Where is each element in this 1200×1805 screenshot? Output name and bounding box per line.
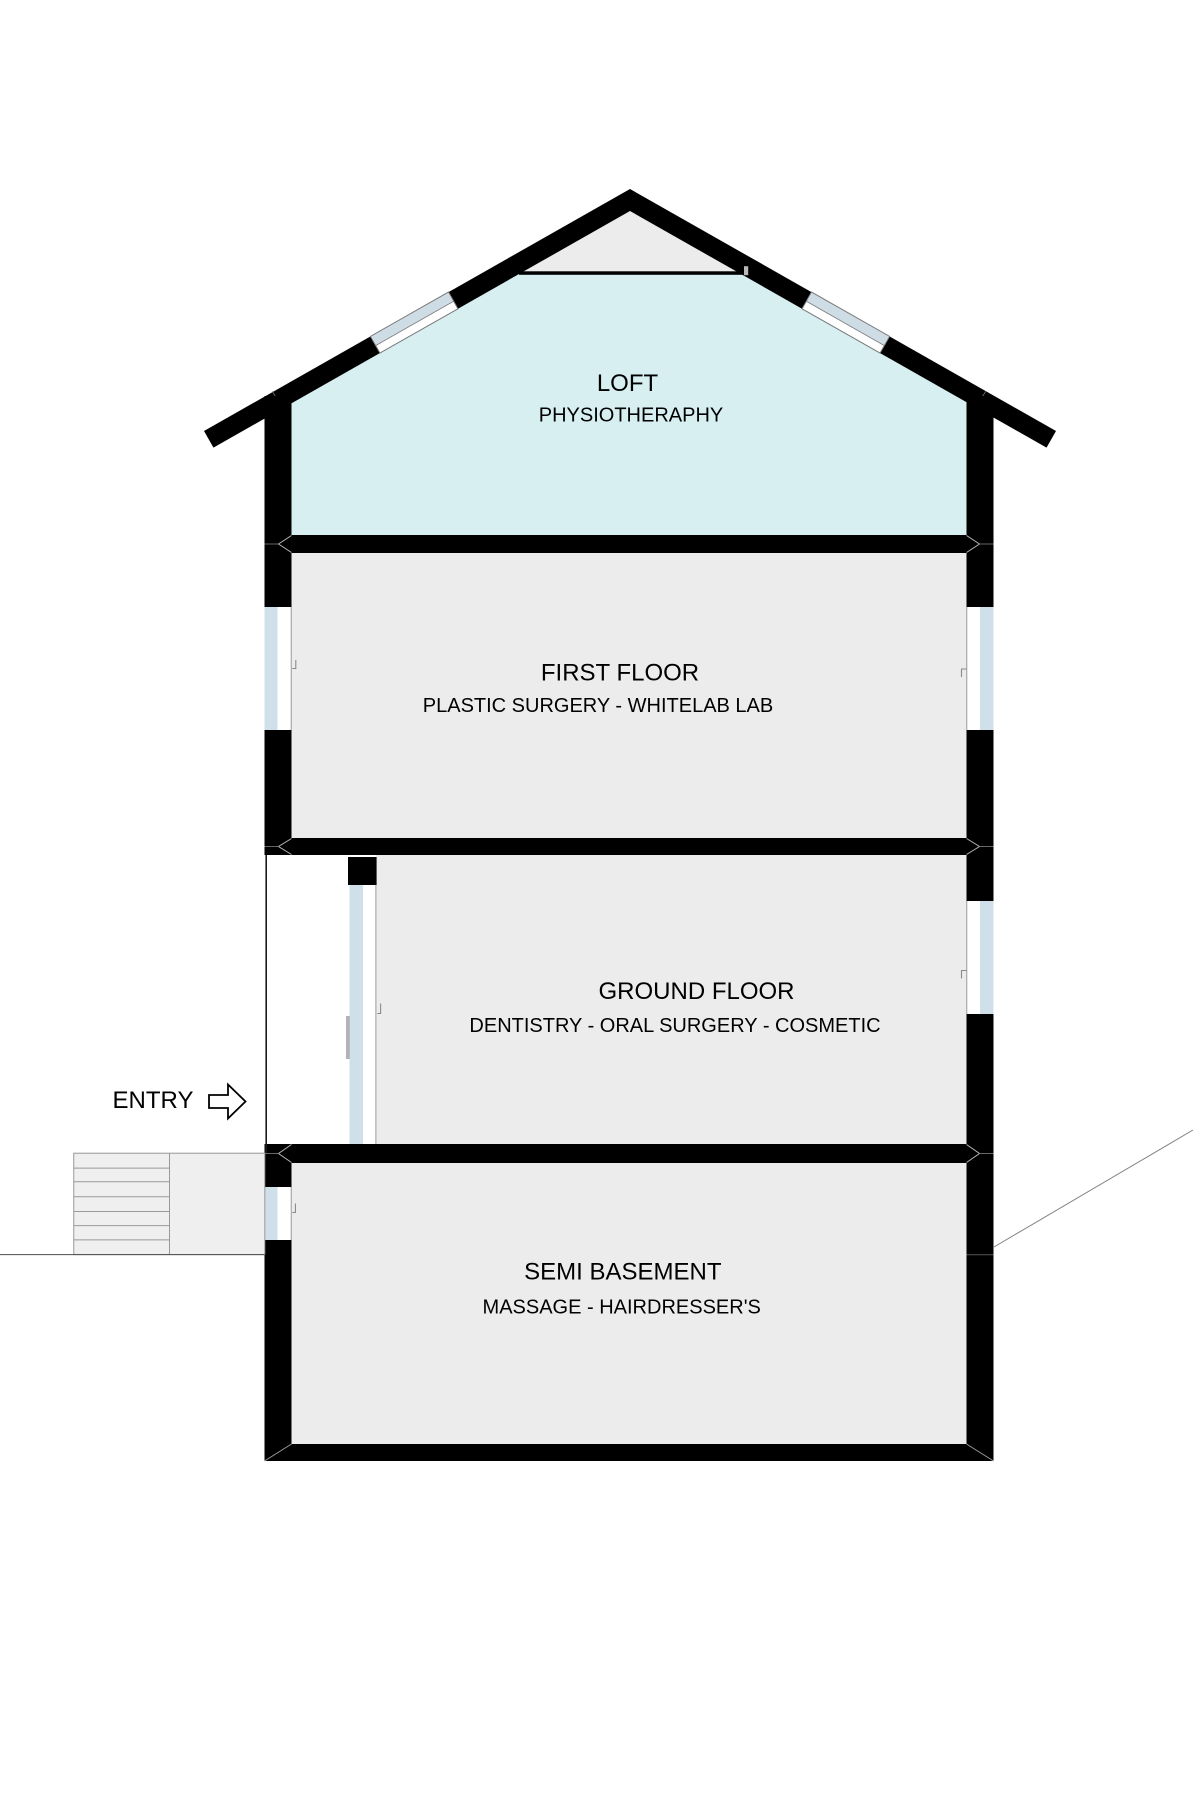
svg-text:PHYSIOTHERAPHY: PHYSIOTHERAPHY (539, 405, 723, 427)
svg-text:DENTISTRY - ORAL SURGERY - COS: DENTISTRY - ORAL SURGERY - COSMETIC (469, 1015, 880, 1037)
svg-text:LOFT: LOFT (597, 370, 659, 397)
svg-text:ENTRY: ENTRY (113, 1087, 194, 1114)
svg-text:SEMI BASEMENT: SEMI BASEMENT (524, 1259, 722, 1286)
svg-text:GROUND FLOOR: GROUND FLOOR (598, 978, 794, 1005)
svg-text:MASSAGE - HAIRDRESSER'S: MASSAGE - HAIRDRESSER'S (483, 1296, 761, 1318)
svg-text:FIRST FLOOR: FIRST FLOOR (541, 659, 699, 686)
svg-text:PLASTIC SURGERY - WHITELAB LAB: PLASTIC SURGERY - WHITELAB LAB (423, 695, 773, 717)
